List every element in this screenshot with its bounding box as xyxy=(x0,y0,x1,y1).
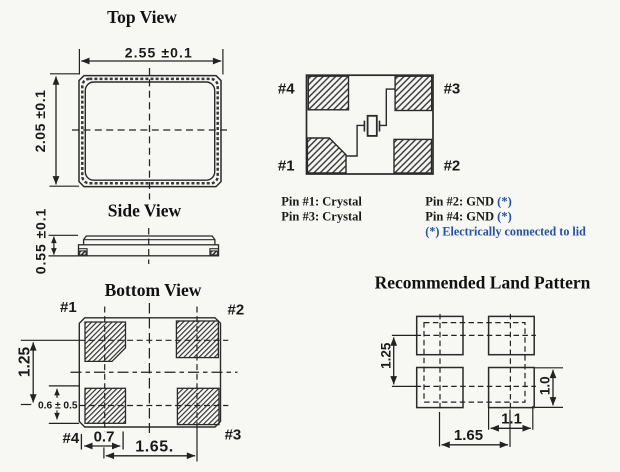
svg-text:#3: #3 xyxy=(225,427,242,444)
svg-text:Pin #2: GND (*): Pin #2: GND (*) xyxy=(425,195,511,209)
svg-text:0.7: 0.7 xyxy=(94,429,115,446)
svg-text:#4: #4 xyxy=(278,80,295,97)
svg-text:#2: #2 xyxy=(444,157,461,174)
svg-text:2.05 ±0.1: 2.05 ±0.1 xyxy=(32,90,48,153)
svg-text:Pin #3: Crystal: Pin #3: Crystal xyxy=(281,209,362,223)
svg-text:1.65: 1.65 xyxy=(454,427,483,444)
svg-text:0.6 ± 0.5: 0.6 ± 0.5 xyxy=(38,401,78,412)
svg-text:1.0: 1.0 xyxy=(538,376,553,395)
svg-text:1.1: 1.1 xyxy=(501,411,522,428)
svg-text:#4: #4 xyxy=(63,430,80,447)
svg-text:Pin #1: Crystal: Pin #1: Crystal xyxy=(281,195,362,209)
svg-text:Pin #4: GND (*): Pin #4: GND (*) xyxy=(425,209,511,223)
svg-text:0.55 ±0.1: 0.55 ±0.1 xyxy=(33,208,49,274)
svg-text:#1: #1 xyxy=(278,157,295,174)
svg-text:#2: #2 xyxy=(228,302,245,319)
svg-text:Side View: Side View xyxy=(108,201,182,221)
svg-text:Top View: Top View xyxy=(107,7,177,27)
svg-text:2.55 ±0.1: 2.55 ±0.1 xyxy=(125,44,193,60)
svg-text:1.25: 1.25 xyxy=(378,342,393,369)
svg-text:(*) Electrically connected to: (*) Electrically connected to lid xyxy=(425,225,586,239)
svg-text:#1: #1 xyxy=(60,299,77,316)
svg-text:1.25: 1.25 xyxy=(17,347,34,378)
svg-text:Bottom View: Bottom View xyxy=(105,280,202,300)
svg-text:Recommended Land Pattern: Recommended Land Pattern xyxy=(375,272,591,292)
svg-text:#3: #3 xyxy=(444,80,461,97)
svg-text:1.65.: 1.65. xyxy=(135,438,174,455)
